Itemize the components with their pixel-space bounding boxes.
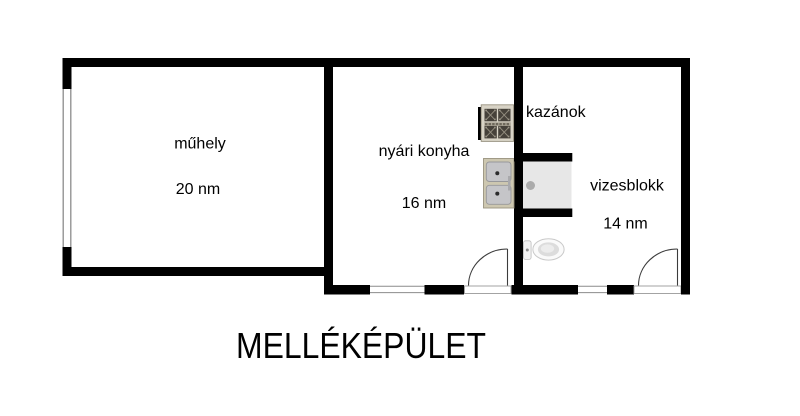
svg-text:16 nm: 16 nm (402, 195, 446, 212)
svg-text:vizesblokk: vizesblokk (590, 178, 665, 195)
svg-text:műhely: műhely (174, 136, 226, 153)
svg-text:nyári konyha: nyári konyha (379, 143, 470, 160)
svg-text:14 nm: 14 nm (603, 216, 647, 233)
svg-text:kazánok: kazánok (526, 104, 587, 121)
svg-text:20 nm: 20 nm (176, 181, 220, 198)
svg-text:MELLÉKÉPÜLET: MELLÉKÉPÜLET (236, 325, 486, 366)
